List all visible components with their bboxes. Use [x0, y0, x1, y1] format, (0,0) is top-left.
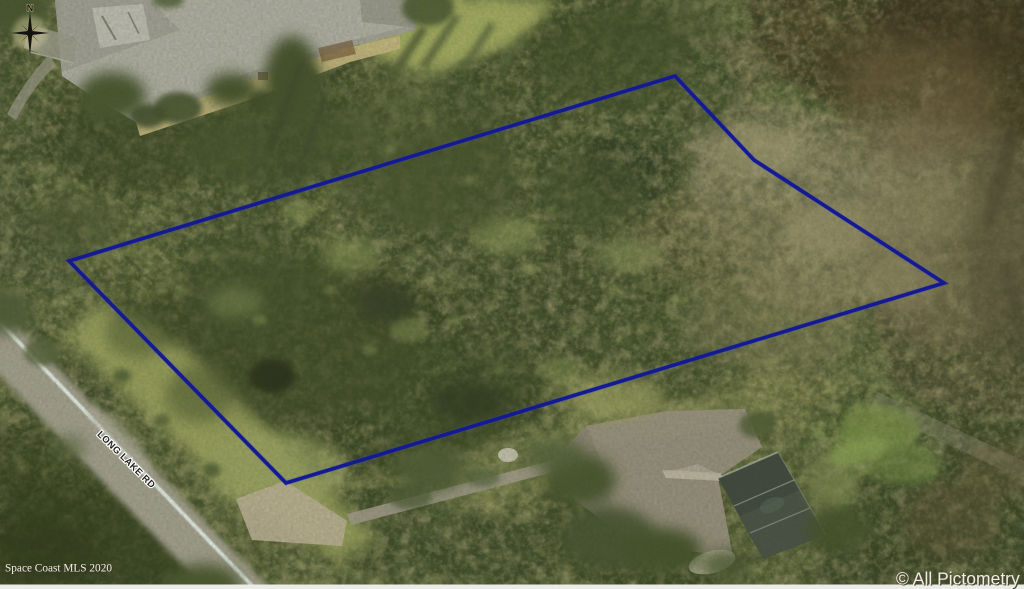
- svg-text:© All Pictometry: © All Pictometry: [896, 569, 1020, 589]
- svg-text:Space Coast MLS 2020: Space Coast MLS 2020: [5, 563, 112, 575]
- svg-text:N: N: [27, 3, 34, 13]
